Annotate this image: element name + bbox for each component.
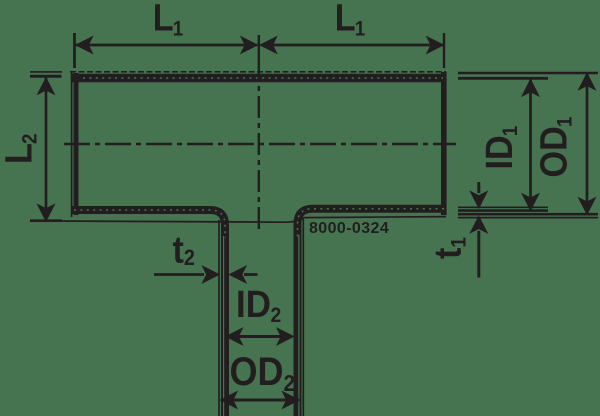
svg-text:8000-0324: 8000-0324	[309, 220, 389, 237]
